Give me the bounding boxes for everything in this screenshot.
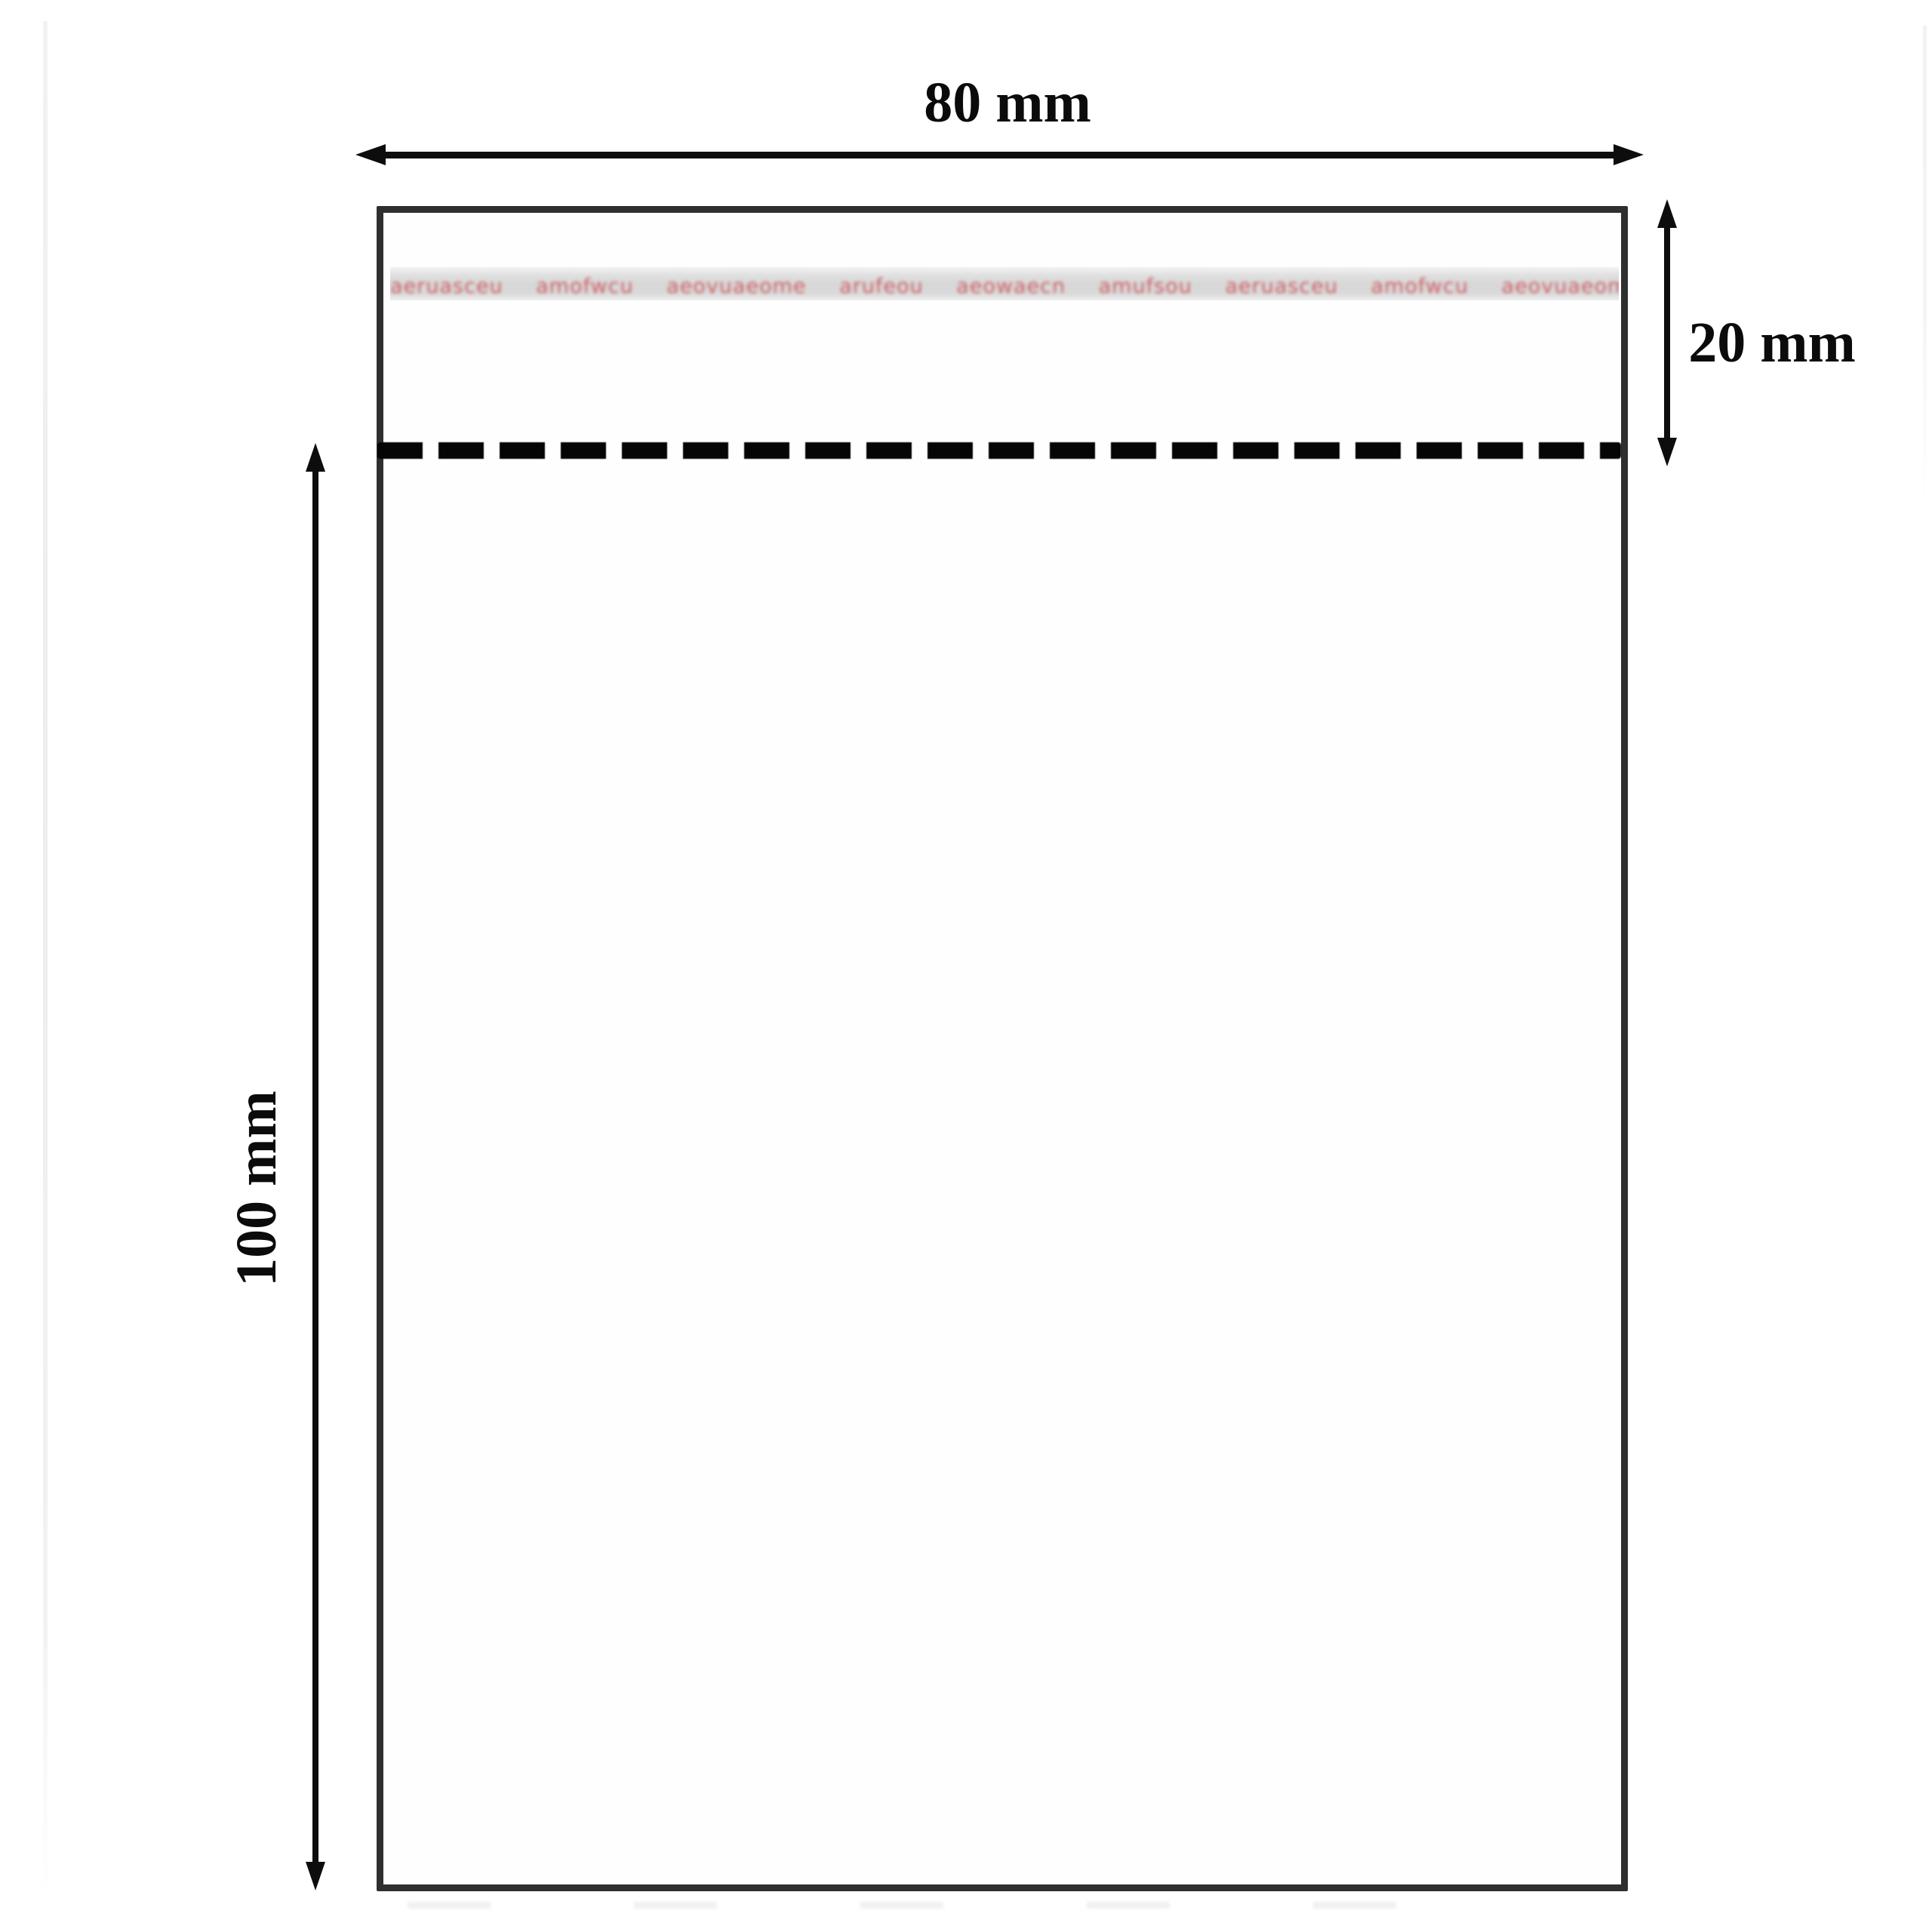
width-dimension-label: 80 mm: [868, 74, 1147, 131]
body-dimension-label: 100 mm: [228, 1060, 285, 1317]
arrowhead-up-icon: [1657, 199, 1677, 228]
arrowhead-down-icon: [1657, 438, 1677, 466]
photo-edge-left: [43, 21, 48, 1899]
photo-edge-right: [1923, 26, 1927, 509]
arrowhead-up-icon: [306, 443, 325, 472]
diagram-canvas: aeruasceu amofwcu aeovuaeome arufeou aeo…: [0, 0, 1932, 1932]
adhesive-strip-print: aeruasceu amofwcu aeovuaeome arufeou aeo…: [390, 275, 1619, 298]
arrowhead-left-icon: [355, 144, 386, 165]
arrowhead-right-icon: [1614, 144, 1644, 165]
body-arrow-shaft: [312, 469, 318, 1865]
adhesive-strip: aeruasceu amofwcu aeovuaeome arufeou aeo…: [390, 267, 1619, 300]
flap-arrow-shaft: [1664, 225, 1670, 441]
width-arrow-shaft: [382, 152, 1617, 158]
fold-dashed-line-icon: [377, 442, 1621, 459]
arrowhead-down-icon: [306, 1862, 325, 1890]
flap-dimension-label: 20 mm: [1681, 314, 1863, 371]
scan-smudge: [408, 1902, 1494, 1909]
